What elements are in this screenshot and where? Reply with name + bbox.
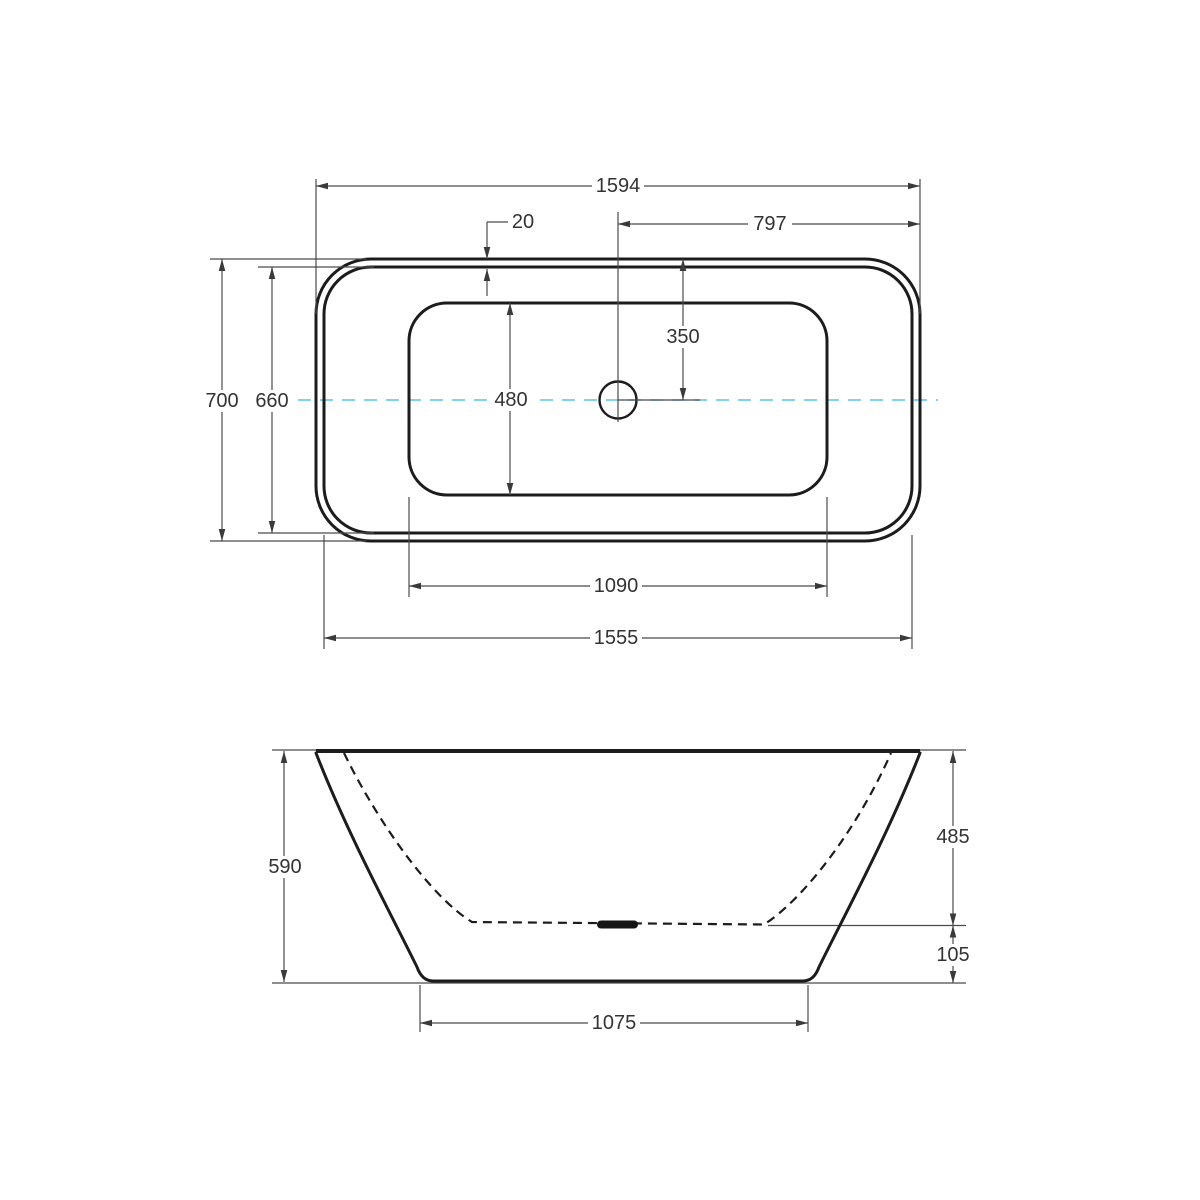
- drain-outlet: [597, 921, 638, 929]
- dim-overall-height: 590: [263, 750, 316, 982]
- dim-base-height: 105: [931, 926, 975, 984]
- dim-label-basin-length: 1090: [594, 575, 639, 597]
- drawing-canvas: 1594 797 20 350 700: [0, 0, 1200, 1200]
- dim-basin-depth: 485: [920, 750, 975, 926]
- top-view: 1594 797 20 350 700: [200, 175, 938, 649]
- dim-basin-length: 1090: [409, 497, 827, 597]
- dim-label-overall-width: 700: [205, 390, 238, 412]
- dim-rim-offset: 20: [487, 211, 538, 296]
- dim-label-rim-length: 1555: [594, 627, 639, 649]
- dim-label-rim-width: 660: [255, 390, 288, 412]
- tub-outer-profile: [316, 753, 920, 981]
- dim-basin-width: 480: [489, 303, 533, 495]
- dim-label-base-height: 105: [936, 944, 969, 966]
- bathtub-technical-drawing: 1594 797 20 350 700: [0, 0, 1200, 1200]
- dim-label-basin-depth: 485: [936, 826, 969, 848]
- interior-profile-hidden-line: [344, 753, 891, 925]
- dim-rim-width: 660: [250, 267, 374, 533]
- dim-label-center-to-edge: 350: [666, 326, 699, 348]
- dim-label-basin-width: 480: [494, 389, 527, 411]
- dim-half-length: 797: [618, 213, 920, 235]
- dim-label-half-length: 797: [753, 213, 786, 235]
- dim-center-to-edge: 350: [661, 259, 705, 400]
- side-view: 590 485 105 1075: [263, 750, 975, 1034]
- dim-label-overall-height: 590: [268, 856, 301, 878]
- dim-label-rim-offset: 20: [512, 211, 534, 233]
- dim-label-base-length: 1075: [592, 1012, 637, 1034]
- dim-label-overall-length: 1594: [596, 175, 641, 197]
- dim-base-length: 1075: [420, 985, 808, 1034]
